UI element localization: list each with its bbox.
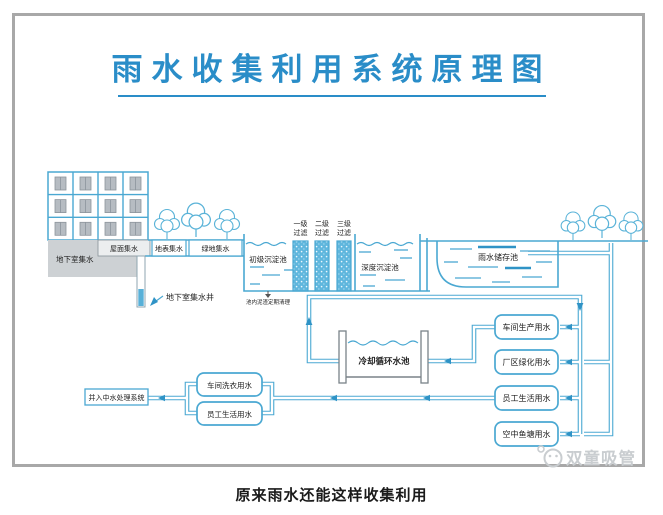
watermark: 双童吸管 xyxy=(538,446,636,468)
cooling-pool: 冷却循环水池 xyxy=(339,331,428,383)
svg-text:员工生活用水: 员工生活用水 xyxy=(503,393,551,403)
filter1-label: 一级 xyxy=(294,219,308,228)
tree-icon xyxy=(588,206,616,238)
roof-collect-label: 屋面集水 xyxy=(110,244,138,253)
svg-text:过滤: 过滤 xyxy=(315,228,329,237)
tree-icon xyxy=(619,212,643,240)
trees-right xyxy=(561,206,643,240)
caption: 原来雨水还能这样收集利用 xyxy=(0,484,663,505)
svg-text:厂区绿化用水: 厂区绿化用水 xyxy=(503,357,551,367)
building: 地下室集水 屋面集水 xyxy=(48,172,150,277)
svg-text:员工生活用水: 员工生活用水 xyxy=(207,409,252,419)
rainwater-system-diagram: 地下室集水 屋面集水 地表集水 绿地集水 地下室集水井 xyxy=(0,0,663,515)
storage-pool-label: 雨水储存池 xyxy=(478,252,518,262)
basement-well: 地下室集水井 xyxy=(137,256,214,307)
svg-text:空中鱼塘用水: 空中鱼塘用水 xyxy=(503,429,551,439)
treatment-label: 并入中水处理系统 xyxy=(89,393,145,402)
primary-tank-water xyxy=(250,267,298,284)
green-collect-label: 绿地集水 xyxy=(202,244,230,253)
svg-text:车间生产用水: 车间生产用水 xyxy=(503,322,551,332)
filter-column-2 xyxy=(315,241,329,291)
arrow-up-icon xyxy=(306,317,313,325)
tree-icon xyxy=(561,212,585,240)
trees-left xyxy=(155,203,240,239)
svg-text:车间洗衣用水: 车间洗衣用水 xyxy=(207,380,252,390)
watermark-text: 双童吸管 xyxy=(566,448,636,468)
basement-collect-label: 地下室集水 xyxy=(56,254,94,264)
arrow-down-icon xyxy=(577,303,584,311)
filter2-label: 二级 xyxy=(315,219,329,228)
filter-column-1 xyxy=(293,241,308,291)
collection-channel: 地表集水 绿地集水 xyxy=(145,240,244,256)
sludge-note: 池内泥渣定期清理 xyxy=(246,298,291,306)
svg-text:过滤: 过滤 xyxy=(294,228,308,237)
tree-icon xyxy=(155,210,180,240)
sludge-arrow-icon xyxy=(265,294,271,298)
deep-tank-label: 深度沉淀池 xyxy=(361,262,399,272)
svg-text:过滤: 过滤 xyxy=(337,228,351,237)
filter3-label: 三级 xyxy=(337,219,351,228)
face-logo-icon xyxy=(545,450,562,467)
surface-collect-label: 地表集水 xyxy=(155,244,183,253)
filter-column-3 xyxy=(337,241,351,291)
usage-right-boxes: 车间生产用水 厂区绿化用水 员工生活用水 空中鱼塘用水 xyxy=(495,315,558,446)
cooling-pool-label: 冷却循环水池 xyxy=(358,356,410,366)
sedimentation-tanks: 初级沉淀池 深度沉淀池 一级 过滤 二级 过滤 三级 过滤 池内泥渣定期清理 xyxy=(244,219,430,306)
primary-tank-label: 初级沉淀池 xyxy=(249,254,287,264)
tree-icon xyxy=(182,203,211,237)
tree-icon xyxy=(215,210,240,240)
page: 雨水收集利用系统原理图 xyxy=(0,0,663,515)
basement-well-label: 地下室集水井 xyxy=(166,292,214,302)
storage-pool: 雨水储存池 xyxy=(420,241,648,287)
